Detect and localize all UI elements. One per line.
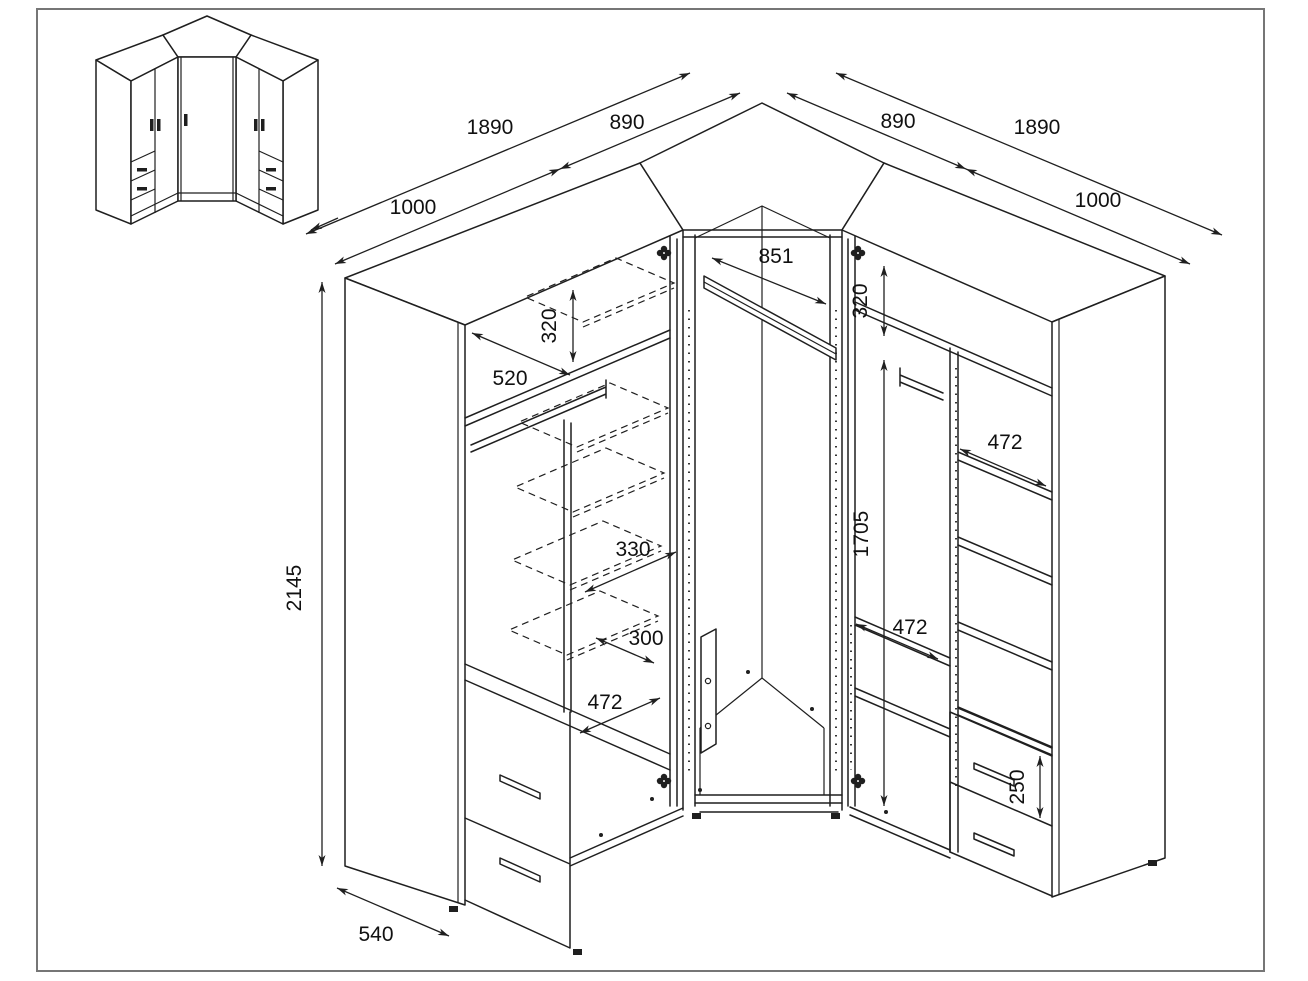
- thumb-corner-top-face: [163, 16, 251, 57]
- hinge-icon: [851, 774, 865, 788]
- dim-label-shelf-330: 330: [615, 538, 650, 561]
- dim-label-left-wing: 1000: [390, 196, 437, 219]
- thumbnail-assembled-wardrobe: [96, 16, 338, 230]
- dim-label-depth: 540: [358, 923, 393, 946]
- left-side-panel: [345, 278, 465, 905]
- thumb-left-side-panel: [96, 60, 131, 224]
- dim-label-top-offset-right: 320: [849, 283, 872, 318]
- left-drawer-handle-bottom: [500, 858, 540, 882]
- right-side-panel: [1052, 276, 1165, 897]
- hinge-icon: [851, 246, 865, 260]
- hinge-icon: [657, 246, 671, 260]
- right-drawer-handle-bottom: [974, 833, 1014, 856]
- thumb-right-side-panel: [283, 60, 318, 224]
- dim-line-shelf-472-right-top: [960, 449, 1046, 486]
- corner-floor-edges: [700, 678, 824, 795]
- thumb-direction-arrow-icon: [311, 218, 338, 230]
- dim-label-right-total: 1890: [1014, 116, 1061, 139]
- wardrobe-diagram: 1890 890 1000 890 1890 1000 851 320 320 …: [0, 0, 1308, 981]
- corner-plinth: [695, 795, 842, 812]
- right-wing: [842, 163, 1165, 897]
- dim-label-corner-rail: 851: [758, 245, 793, 268]
- dim-label-top-offset-left: 320: [538, 308, 561, 343]
- hinge-icons: [657, 246, 865, 788]
- dim-label-right-wing: 1000: [1075, 189, 1122, 212]
- corner-rail-line: [704, 282, 836, 354]
- dim-label-rail-depth: 520: [492, 367, 527, 390]
- dim-label-left-corner: 890: [609, 111, 644, 134]
- dim-label-interior-height: 1705: [850, 511, 873, 558]
- right-outer-bay-shelves: [958, 452, 1052, 755]
- left-drawer-handle-top: [500, 775, 540, 799]
- dim-label-left-total: 1890: [467, 116, 514, 139]
- corner-divider-panel: [701, 629, 716, 753]
- divider-hole: [705, 723, 710, 728]
- thumb-corner-door-face: [178, 57, 236, 201]
- divider-hole: [705, 678, 710, 683]
- left-partition: [564, 420, 571, 712]
- right-drawer-tower: [950, 708, 1052, 896]
- right-hanging-rail: [900, 368, 943, 400]
- dim-label-drawer-front: 250: [1006, 769, 1029, 804]
- dim-label-shelf-472-right-top: 472: [987, 431, 1022, 454]
- left-hanging-rail: [471, 380, 606, 452]
- left-wing-floor: [570, 808, 683, 866]
- dim-label-height: 2145: [283, 565, 306, 612]
- dim-label-shelf-472-left: 472: [587, 691, 622, 714]
- dim-label-shelf-472-right-mid: 472: [892, 616, 927, 639]
- left-adjustable-shelves-dashed: [509, 258, 674, 660]
- left-wing-corner-panel: [670, 236, 677, 806]
- hinge-icon: [657, 774, 671, 788]
- dim-label-right-corner: 890: [880, 110, 915, 133]
- drawing-sheet: 1890 890 1000 890 1890 1000 851 320 320 …: [0, 0, 1308, 981]
- dim-label-shelf-300: 300: [628, 627, 663, 650]
- right-wing-floor: [850, 807, 950, 858]
